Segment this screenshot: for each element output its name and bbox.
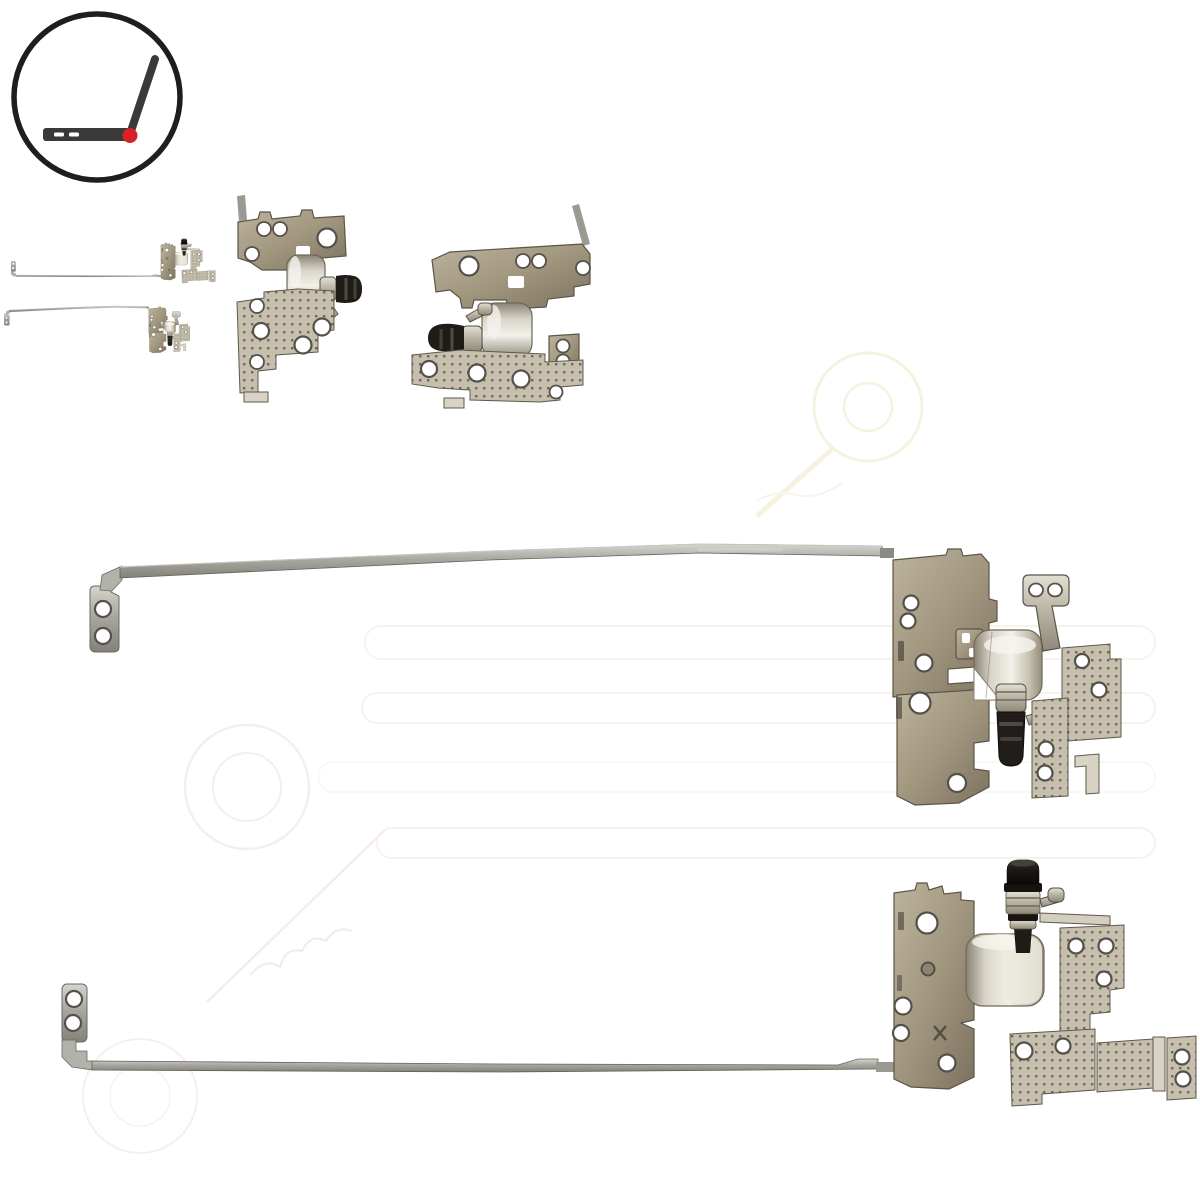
support-rail-bar <box>92 1059 878 1072</box>
product-image-canvas <box>0 0 1200 1200</box>
thumbnail-pair-overview[interactable] <box>4 239 215 353</box>
thumbnail-hinge-closeup-left[interactable] <box>412 204 590 408</box>
screw-hole <box>95 601 111 617</box>
closeup-pin <box>336 275 362 303</box>
hinge-assembly <box>876 860 1196 1107</box>
screw-hole <box>95 628 111 644</box>
tab-step <box>62 1040 93 1070</box>
brand-logo[interactable] <box>14 14 180 180</box>
closeup-pin <box>428 324 464 352</box>
top-hinge-rail-photo <box>90 544 1121 805</box>
screw-hole <box>65 1015 81 1031</box>
bridge-strip <box>1040 913 1110 925</box>
tab-step <box>100 566 122 591</box>
screw-hole <box>66 991 82 1007</box>
perforated-plate-lower <box>1010 1029 1095 1106</box>
thumbnail-hinge-closeup-right[interactable] <box>237 195 362 402</box>
product-photo <box>0 0 1200 1200</box>
watermark <box>83 353 1155 1153</box>
perforated-plate-right <box>1167 1036 1196 1100</box>
hinge-pivot-dot <box>123 128 138 143</box>
bottom-hinge-rail-photo <box>62 860 1196 1107</box>
perforated-plate-mid <box>1097 1039 1153 1092</box>
logo-ring <box>14 14 180 180</box>
hinge-assembly <box>880 548 1121 805</box>
plate-hook-foot <box>1075 754 1099 794</box>
